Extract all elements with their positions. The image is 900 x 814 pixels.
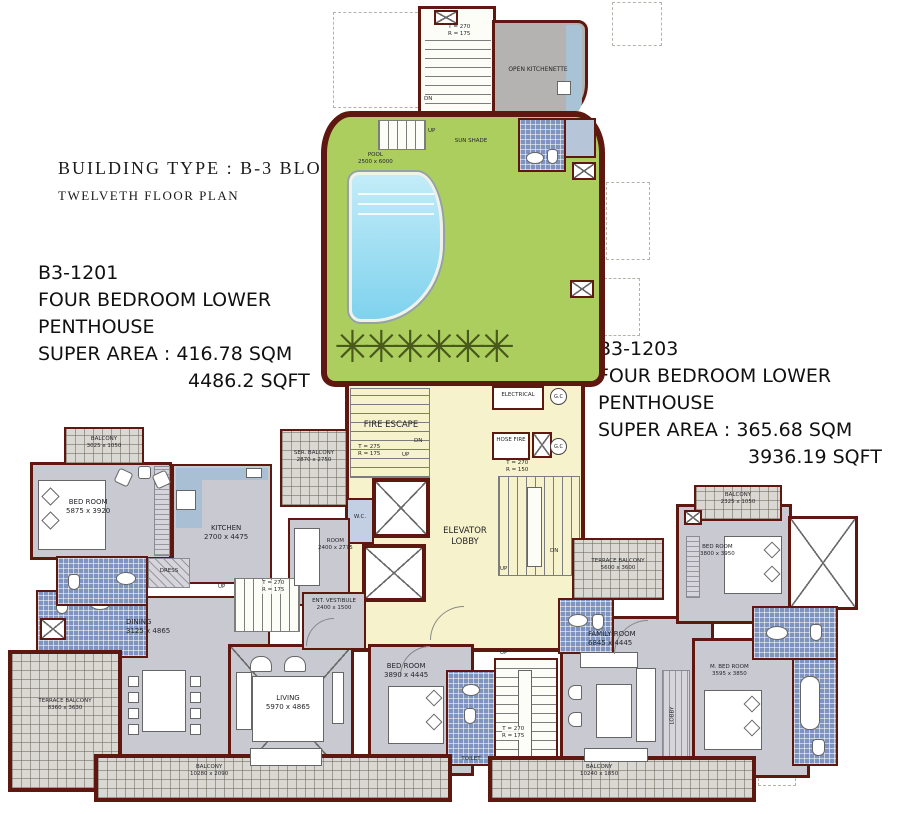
up-marker: UP — [218, 584, 225, 591]
sink-icon — [462, 684, 480, 696]
tread-spec: T = 270 — [262, 580, 284, 587]
room-label-elevator-lobby: ELEVATOR LOBBY — [432, 526, 498, 548]
room-label-maid-room: ROOM 2400 x 2775 — [318, 538, 353, 552]
chair-icon — [190, 676, 201, 687]
room-dims: 8360 x 3630 — [18, 705, 112, 712]
tv-unit-icon — [332, 672, 344, 724]
m-bath-right — [792, 658, 838, 766]
chair-icon — [190, 692, 201, 703]
elevator-shaft — [372, 478, 430, 538]
toilet-left — [56, 556, 148, 606]
stair-spec-bottom: T = 270 R = 175 — [502, 726, 524, 740]
room-name: BED ROOM — [700, 544, 735, 551]
room-dims: 10280 x 2090 — [190, 771, 228, 778]
armchair-icon — [284, 656, 306, 672]
room-label-ent-vestibule: ENT. VESTIBULE 2400 x 1500 — [303, 598, 365, 612]
void-shaft — [788, 516, 858, 610]
wardrobe-strip — [686, 536, 700, 598]
terrace-stair — [378, 120, 426, 150]
room-name: BALCONY — [68, 436, 140, 443]
stair-landing — [518, 670, 532, 758]
dining-table-icon — [142, 670, 186, 732]
unit-area-sqft: 4486.2 SQFT — [188, 368, 310, 395]
bathtub-icon — [800, 676, 820, 730]
stair-spec-left: T = 270 R = 175 — [262, 580, 284, 594]
toilet-icon — [592, 614, 604, 630]
up-marker: UP — [428, 128, 435, 135]
dn-marker: DN — [414, 438, 422, 445]
shaft-xbox — [570, 280, 594, 298]
sink-icon — [766, 626, 788, 640]
room-dims: 3890 x 4445 — [384, 671, 428, 680]
sofa-icon — [236, 672, 252, 730]
room-name: BALCONY — [190, 764, 228, 771]
chair-icon — [138, 466, 151, 479]
toilet-center — [446, 670, 496, 766]
sun-shade-label: SUN SHADE — [432, 138, 510, 145]
room-label-lobby: LOBBY — [669, 707, 676, 725]
room-dims: 5970 x 4865 — [258, 703, 318, 712]
room-name: ENT. VESTIBULE — [303, 598, 365, 605]
room-dims: 3800 x 3950 — [700, 551, 735, 558]
sofa-icon — [580, 652, 638, 668]
unit-type-line2: PENTHOUSE — [598, 390, 882, 417]
room-label-terrace-balcony-right: TERRACE BALCONY 5600 x 3600 — [578, 558, 658, 572]
bed-icon — [294, 528, 320, 586]
toilet-icon — [812, 739, 825, 756]
unit-area-sqft: 3936.19 SQFT — [748, 444, 882, 471]
room-label-balcony-bottom-left: BALCONY 10280 x 2090 — [190, 764, 228, 778]
room-dims: 3025 x 1050 — [68, 443, 140, 450]
room-label-living: LIVING 5970 x 4865 — [258, 694, 318, 712]
room-label-pool: POOL 2500 x 6000 — [358, 152, 393, 166]
palm-tree-icon: ✳ — [478, 326, 515, 370]
sofa-icon — [636, 668, 656, 742]
room-dims: 2870 x 2750 — [282, 457, 346, 464]
drawing-title: BUILDING TYPE : B-3 BLOCK TWELVETH FLOOR… — [58, 158, 351, 204]
riser-spec: R = 175 — [502, 733, 524, 740]
shaft-xbox — [434, 10, 458, 25]
tower-shower — [564, 118, 596, 158]
room-label-hose-fire: HOSE FIRE — [494, 437, 528, 444]
shaft-xbox — [532, 432, 552, 458]
room-dims: 2325 x 1050 — [700, 499, 776, 506]
toilet-icon — [464, 708, 476, 724]
room-name: BALCONY — [580, 764, 618, 771]
room-label-serv-balcony: SER. BALCONY 2870 x 2750 — [282, 450, 346, 464]
unit-label-b3-1201: B3-1201 FOUR BEDROOM LOWER PENTHOUSE SUP… — [38, 260, 310, 395]
room-name: BED ROOM — [384, 662, 428, 671]
sofa-icon — [250, 748, 322, 766]
sink-icon — [246, 468, 262, 478]
room-dims: 2500 x 6000 — [358, 159, 393, 166]
stair-spec-fire-escape: T = 275 R = 175 — [358, 444, 380, 458]
unit-type-line1: FOUR BEDROOM LOWER — [598, 363, 882, 390]
room-label-m-bed-room: M. BED ROOM 3595 x 3850 — [710, 664, 749, 678]
tread-spec: T = 270 — [502, 726, 524, 733]
room-name: POOL — [358, 152, 393, 159]
room-dims: 5875 x 3920 — [66, 507, 110, 516]
room-label-balcony-right-top: BALCONY 2325 x 1050 — [700, 492, 776, 506]
chair-icon — [128, 708, 139, 719]
chair-icon — [190, 724, 201, 735]
floor-plan-page: BUILDING TYPE : B-3 BLOCK TWELVETH FLOOR… — [0, 0, 900, 814]
room-name: FAMILY ROOM — [588, 630, 636, 639]
room-name: TERRACE BALCONY — [18, 698, 112, 705]
up-marker: UP — [500, 650, 507, 657]
room-name2: LOBBY — [432, 537, 498, 548]
bottom-stair — [494, 658, 558, 770]
room-label-terrace-balcony-left: TERRACE BALCONY 8360 x 3630 — [18, 698, 112, 712]
room-label-family-room: FAMILY ROOM 6845 x 4445 — [588, 630, 636, 648]
room-name: SER. BALCONY — [282, 450, 346, 457]
room-dims: 2400 x 1500 — [303, 605, 365, 612]
room-name: LIVING — [258, 694, 318, 703]
riser-spec: R = 175 — [448, 31, 470, 38]
room-label-bed-room-right: BED ROOM 3800 x 3950 — [700, 544, 735, 558]
unit-id: B3-1203 — [598, 336, 882, 363]
room-label-fire-escape: FIRE ESCAPE — [350, 420, 432, 431]
room-dims: 10240 x 1850 — [580, 771, 618, 778]
armchair-icon — [250, 656, 272, 672]
balcony-bottom-right — [488, 756, 756, 802]
chair-icon — [190, 708, 201, 719]
room-dims: 2700 x 4475 — [204, 533, 248, 542]
elevator-shaft — [362, 544, 426, 602]
room-label-bed-room-left: BED ROOM 5875 x 3920 — [66, 498, 110, 516]
riser-spec: R = 175 — [262, 587, 284, 594]
dn-marker: DN — [550, 548, 558, 555]
stair-spec-core: T = 270 R = 150 — [506, 460, 528, 474]
pool-steps — [358, 193, 434, 215]
up-marker: UP — [402, 452, 409, 459]
room-name: TERRACE BALCONY — [578, 558, 658, 565]
shaft-xbox — [40, 618, 66, 640]
room-label-wc: W.C. — [348, 514, 372, 521]
unit-area-sqm: SUPER AREA : 416.78 SQM — [38, 341, 310, 368]
sink-icon — [568, 614, 588, 627]
roof-outline-dashed — [606, 182, 650, 260]
room-dims: 3125 x 4865 — [126, 627, 170, 636]
stair-spec-top: T = 270 R = 175 — [448, 24, 470, 38]
room-name: M. BED ROOM — [710, 664, 749, 671]
room-label-toilet: TOILET — [448, 756, 494, 763]
armchair-icon — [568, 685, 582, 700]
unit-area-sqm: SUPER AREA : 365.68 SQM — [598, 417, 882, 444]
unit-label-b3-1203: B3-1203 FOUR BEDROOM LOWER PENTHOUSE SUP… — [598, 336, 882, 471]
room-name: ELEVATOR — [432, 526, 498, 537]
unit-type-line2: PENTHOUSE — [38, 314, 310, 341]
building-type-title: BUILDING TYPE : B-3 BLOCK — [58, 158, 351, 179]
room-name: ROOM — [318, 538, 353, 545]
room-label-kitchen: KITCHEN 2700 x 4475 — [204, 524, 248, 542]
sink-icon — [116, 572, 136, 585]
room-label-balcony-bottom-right: BALCONY 10240 x 1850 — [580, 764, 618, 778]
gc-meter: G.C — [550, 438, 567, 455]
palm-trees: ✳ ✳ ✳ ✳ ✳ ✳ — [334, 326, 507, 370]
room-name: DINING — [126, 618, 170, 627]
unit-type-line1: FOUR BEDROOM LOWER — [38, 287, 310, 314]
tread-spec: T = 275 — [358, 444, 380, 451]
core-right-stair — [498, 476, 580, 576]
room-name: BALCONY — [700, 492, 776, 499]
serv-balcony — [280, 429, 348, 507]
sofa-icon — [584, 748, 648, 762]
dn-marker: DN — [424, 96, 432, 103]
gc-meter: G.C — [550, 388, 567, 405]
room-name: BED ROOM — [66, 498, 110, 507]
stair-landing — [527, 487, 542, 567]
table-icon — [596, 684, 632, 738]
room-dims: 5600 x 3600 — [578, 565, 658, 572]
tower-toilet — [518, 118, 566, 172]
room-label-dress: DRESS — [152, 568, 186, 575]
armchair-icon — [568, 712, 582, 727]
unit-id: B3-1201 — [38, 260, 310, 287]
stove-icon — [557, 81, 571, 95]
roof-outline-dashed — [333, 12, 423, 108]
room-dims: 6845 x 4445 — [588, 639, 636, 648]
room-name: KITCHEN — [204, 524, 248, 533]
shaft-xbox — [684, 510, 702, 525]
room-label-electrical: ELECTRICAL — [493, 392, 543, 399]
tread-spec: T = 270 — [506, 460, 528, 467]
room-label-bed-room-center: BED ROOM 3890 x 4445 — [384, 662, 428, 680]
up-marker: UP — [500, 566, 507, 573]
chair-icon — [128, 724, 139, 735]
m-toilet-upper — [752, 606, 838, 660]
fire-escape-stair — [350, 388, 430, 478]
chair-icon — [128, 692, 139, 703]
roof-outline-dashed — [612, 2, 662, 46]
room-dims: 2400 x 2775 — [318, 545, 353, 552]
room-label-balcony-left-top: BALCONY 3025 x 1050 — [68, 436, 140, 450]
sink-icon — [526, 152, 544, 164]
stove-icon — [176, 490, 196, 510]
tread-spec: T = 270 — [448, 24, 470, 31]
stair-treads — [425, 33, 491, 113]
room-dims: 3595 x 3850 — [710, 671, 749, 678]
shaft-xbox — [572, 162, 596, 180]
riser-spec: R = 175 — [358, 451, 380, 458]
toilet-icon — [68, 574, 80, 590]
toilet-icon — [810, 624, 822, 641]
room-label-open-kitchenette: OPEN KITCHENETTE — [498, 66, 578, 74]
riser-spec: R = 150 — [506, 467, 528, 474]
chair-icon — [128, 676, 139, 687]
toilet-icon — [547, 149, 558, 164]
floor-subtitle: TWELVETH FLOOR PLAN — [58, 188, 351, 204]
roof-outline-dashed — [604, 278, 640, 336]
room-label-dining: DINING 3125 x 4865 — [126, 618, 170, 636]
